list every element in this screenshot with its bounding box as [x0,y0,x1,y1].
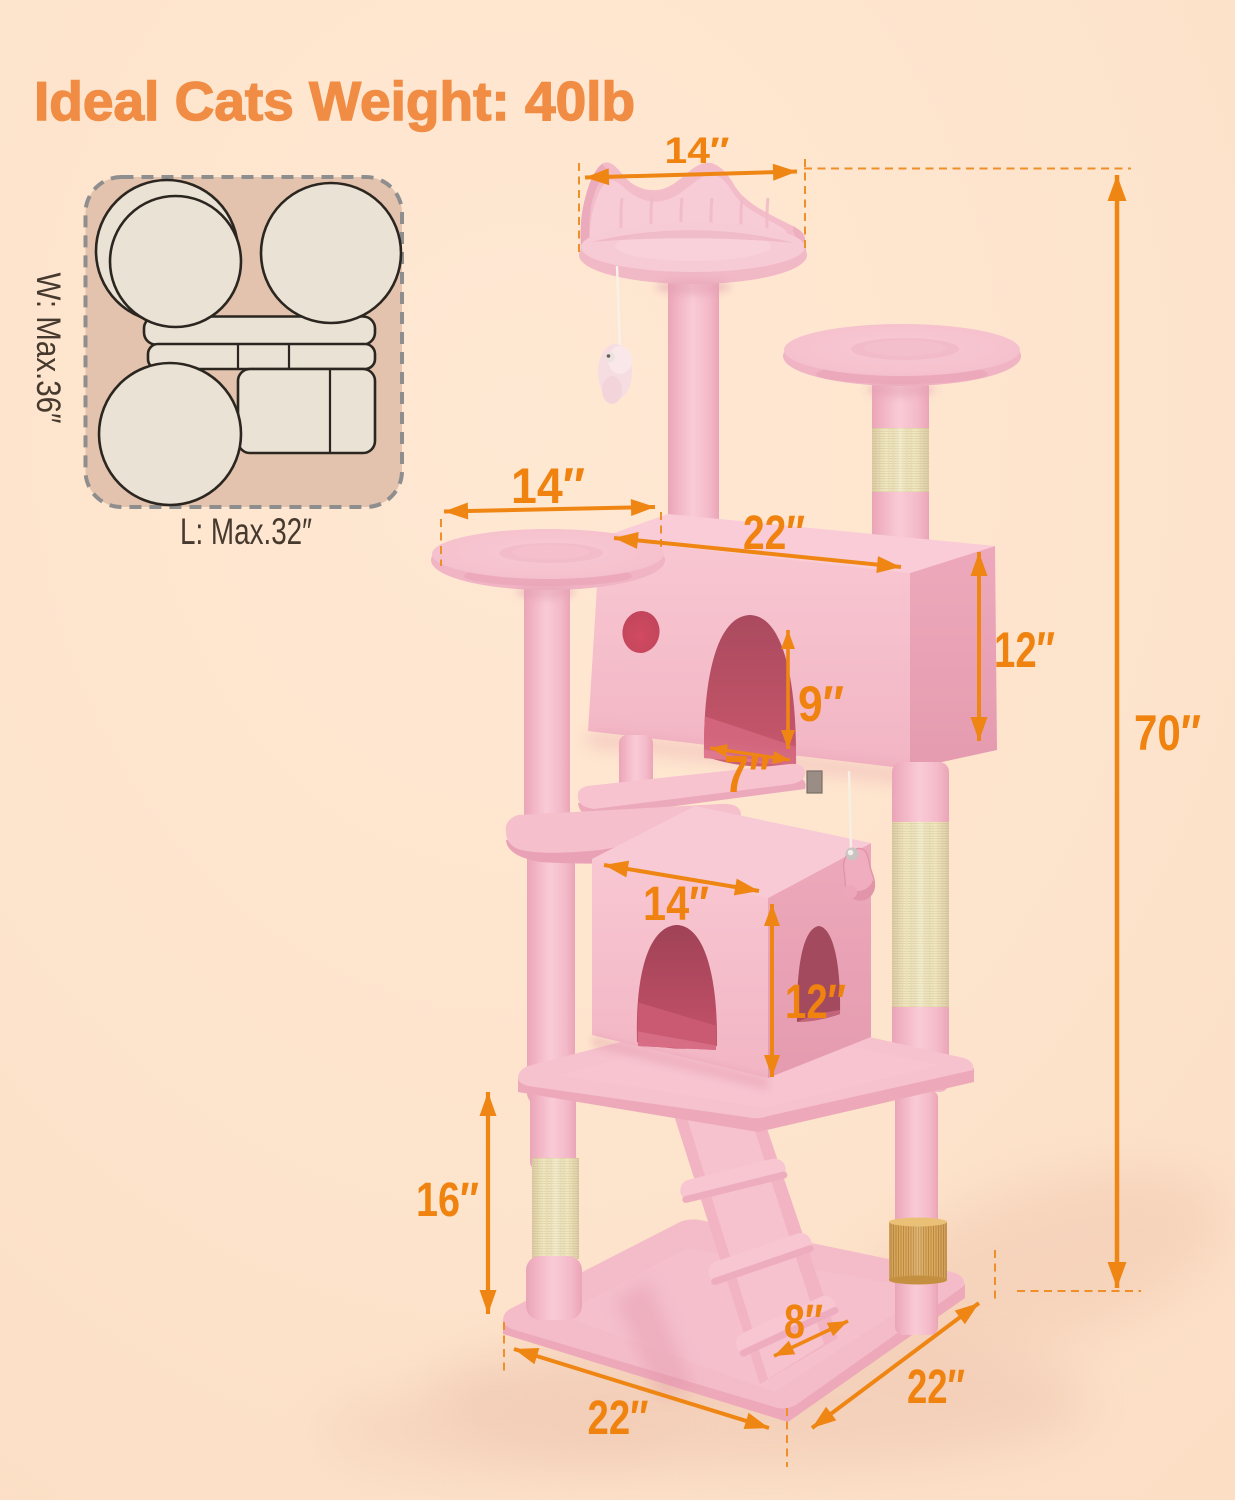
svg-text:70″: 70″ [1134,705,1201,761]
svg-text:16″: 16″ [416,1174,479,1227]
svg-text:7″: 7″ [724,746,770,804]
svg-text:8″: 8″ [784,1296,823,1349]
svg-text:Ideal Cats Weight: 40lb: Ideal Cats Weight: 40lb [34,70,635,132]
svg-text:9″: 9″ [798,676,844,732]
svg-text:12″: 12″ [994,622,1055,678]
svg-text:22″: 22″ [588,1392,649,1445]
svg-text:14″: 14″ [511,458,585,514]
svg-text:L: Max.32″: L: Max.32″ [180,511,312,552]
svg-text:W: Max.36″: W: Max.36″ [29,273,67,424]
svg-text:14″: 14″ [643,878,709,931]
svg-text:22″: 22″ [743,507,805,560]
svg-text:14″: 14″ [665,130,730,171]
svg-text:12″: 12″ [785,976,846,1029]
svg-text:22″: 22″ [907,1361,965,1414]
